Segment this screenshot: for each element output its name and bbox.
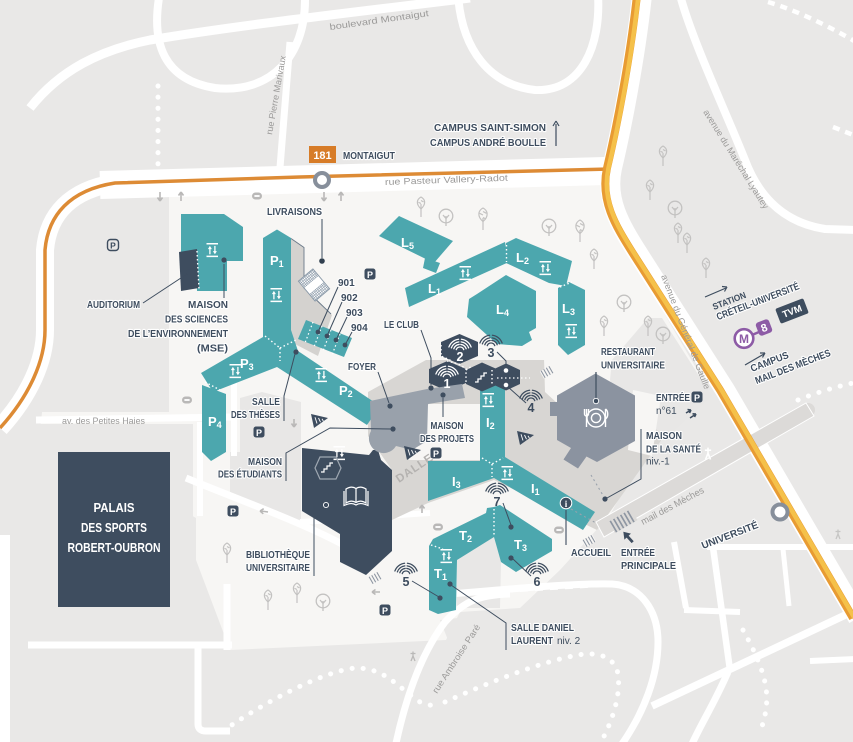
svg-text:RESTAURANT: RESTAURANT [601,347,655,358]
svg-text:UNIVERSITAIRE: UNIVERSITAIRE [601,361,665,372]
svg-text:2: 2 [457,350,464,364]
svg-text:(MSE): (MSE) [197,344,228,355]
svg-text:LE CLUB: LE CLUB [384,320,419,331]
svg-text:ROBERT-OUBRON: ROBERT-OUBRON [68,541,161,555]
svg-text:FOYER: FOYER [348,362,377,373]
svg-text:CAMPUS ANDRÉ BOULLE: CAMPUS ANDRÉ BOULLE [430,136,546,149]
svg-text:DES PROJETS: DES PROJETS [420,434,474,445]
svg-text:SALLE DANIEL: SALLE DANIEL [511,623,574,634]
svg-text:SALLE: SALLE [252,397,280,408]
svg-text:LIVRAISONS: LIVRAISONS [267,207,322,218]
svg-text:1: 1 [444,377,451,391]
svg-text:181: 181 [313,150,331,162]
svg-text:902: 902 [341,293,358,304]
svg-text:5: 5 [403,575,410,589]
svg-text:904: 904 [351,323,368,334]
svg-text:P: P [110,241,116,251]
svg-text:MAISON: MAISON [188,300,228,311]
svg-text:niv.-1: niv.-1 [646,457,670,468]
svg-text:3: 3 [488,346,495,360]
svg-text:MAISON: MAISON [248,457,282,468]
svg-text:4: 4 [528,401,535,415]
svg-text:av. des Petites Haies: av. des Petites Haies [62,416,145,426]
svg-text:PRINCIPALE: PRINCIPALE [621,561,676,572]
svg-text:ENTRÉE: ENTRÉE [621,546,655,559]
svg-text:niv. 2: niv. 2 [557,636,581,647]
svg-text:MAISON: MAISON [646,431,682,442]
svg-text:DES ÉTUDIANTS: DES ÉTUDIANTS [218,468,282,481]
svg-text:DE LA SANTÉ: DE LA SANTÉ [646,443,701,456]
svg-text:7: 7 [494,495,501,509]
svg-text:M: M [739,332,749,346]
svg-text:UNIVERSITAIRE: UNIVERSITAIRE [246,563,310,574]
svg-text:LAURENT: LAURENT [511,636,553,647]
svg-text:DES SCIENCES: DES SCIENCES [165,315,228,326]
svg-text:PALAIS: PALAIS [94,501,135,515]
svg-text:901: 901 [338,278,355,289]
svg-text:DES SPORTS: DES SPORTS [81,521,147,535]
svg-text:CAMPUS SAINT-SIMON: CAMPUS SAINT-SIMON [434,123,546,134]
svg-text:903: 903 [346,308,363,319]
svg-text:n°61: n°61 [656,406,677,417]
svg-text:ENTRÉE: ENTRÉE [656,391,690,404]
svg-text:MONTAIGUT: MONTAIGUT [343,151,395,162]
svg-text:BIBLIOTHÈQUE: BIBLIOTHÈQUE [246,548,310,561]
svg-text:AUDITORIUM: AUDITORIUM [87,300,140,311]
svg-text:ACCUEIL: ACCUEIL [571,548,611,559]
svg-text:MAISON: MAISON [431,421,464,432]
svg-text:DE L’ENVIRONNEMENT: DE L’ENVIRONNEMENT [128,329,228,340]
svg-text:DES THÈSES: DES THÈSES [231,408,280,421]
